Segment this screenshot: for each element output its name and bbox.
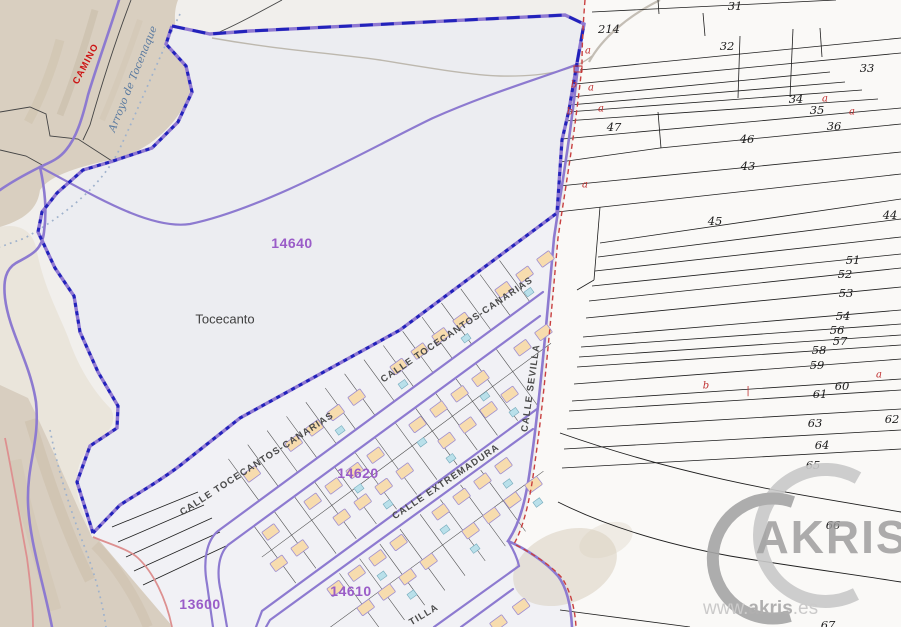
- parcel-number-36: 36: [827, 119, 842, 133]
- ref-mark: a: [582, 180, 588, 191]
- parcel-number-58: 58: [812, 343, 827, 357]
- watermark-brand: AKRIS: [755, 511, 901, 563]
- parcel-number-45: 45: [707, 214, 723, 228]
- place-label: Tocecanto: [195, 312, 254, 327]
- ref-mark: a: [822, 94, 828, 105]
- zone-label-14620: 14620: [337, 465, 378, 481]
- parcel-number-64: 64: [815, 438, 830, 452]
- parcel-number-32: 32: [720, 39, 735, 53]
- parcel-number-43: 43: [740, 159, 756, 173]
- watermark-url: www.akris.es: [702, 598, 818, 619]
- parcel-number-67: 67: [821, 618, 836, 627]
- ref-mark: a: [585, 46, 591, 57]
- map-viewport[interactable]: 14640146201461013600TocecantoCALLE TOCEC…: [0, 0, 901, 627]
- parcel-number-34: 34: [789, 92, 804, 106]
- parcel-number-52: 52: [838, 267, 853, 281]
- parcel-number-35: 35: [810, 103, 825, 117]
- parcel-number-46: 46: [739, 132, 755, 146]
- parcel-number-33: 33: [860, 61, 875, 75]
- parcel-number-60: 60: [835, 379, 850, 393]
- zone-label-14640: 14640: [271, 235, 312, 251]
- ref-mark: b: [571, 80, 577, 91]
- parcel-number-61: 61: [813, 387, 828, 401]
- parcel-number-214: 214: [597, 22, 620, 36]
- parcel-number-63: 63: [808, 416, 823, 430]
- ref-mark: a: [876, 370, 882, 381]
- zone-label-14610: 14610: [330, 583, 371, 599]
- ref-mark: |: [746, 386, 749, 397]
- parcel-number-62: 62: [885, 412, 900, 426]
- ref-mark: a: [849, 107, 855, 118]
- zone-label-13600: 13600: [179, 596, 220, 612]
- ref-mark: a: [598, 104, 604, 115]
- ref-mark: b: [567, 107, 573, 118]
- parcel-number-44: 44: [882, 208, 898, 222]
- parcel-number-57: 57: [833, 334, 848, 348]
- ref-mark: a: [588, 83, 594, 94]
- parcel-number-53: 53: [839, 286, 854, 300]
- ref-mark: b: [703, 381, 709, 392]
- cadastral-map: 14640146201461013600TocecantoCALLE TOCEC…: [0, 0, 901, 627]
- parcel-number-47: 47: [606, 120, 622, 134]
- parcel-number-31: 31: [728, 0, 743, 13]
- parcel-number-59: 59: [810, 358, 825, 372]
- parcel-number-54: 54: [836, 309, 851, 323]
- parcel-number-51: 51: [846, 253, 861, 267]
